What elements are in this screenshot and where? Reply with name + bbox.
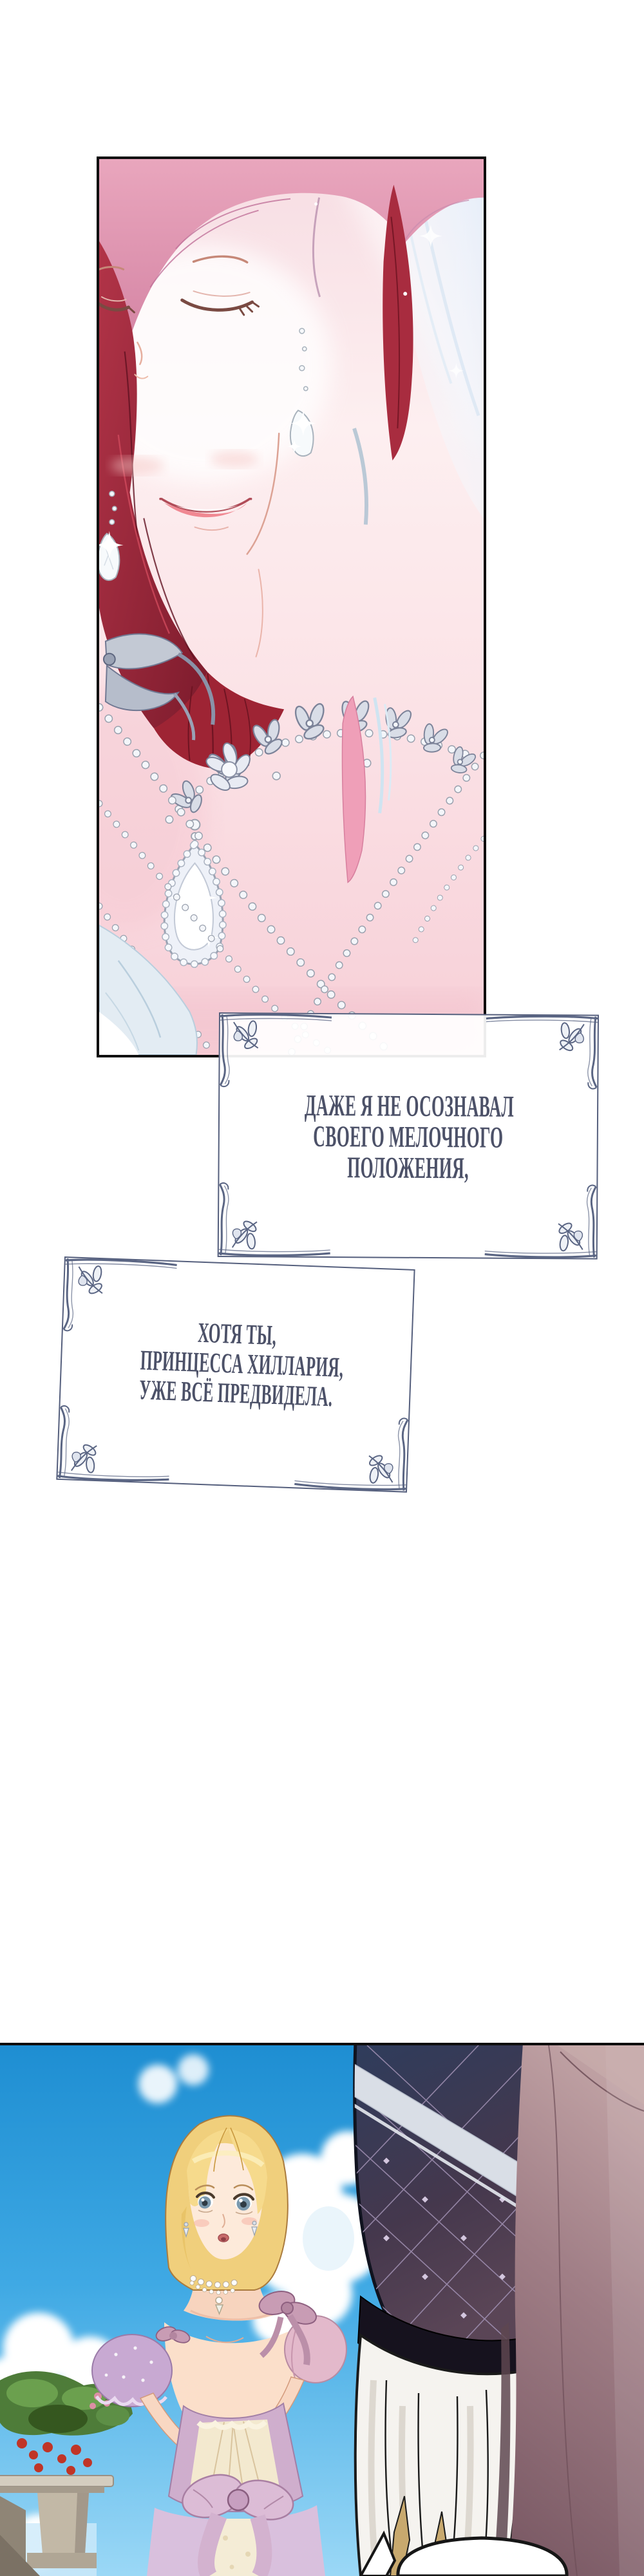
corner-ornament-icon <box>483 1014 600 1092</box>
narration-line: УЖЕ ВСЁ ПРЕДВИДЕЛА. <box>138 1375 331 1412</box>
corner-ornament-icon <box>218 1012 334 1090</box>
narration-line: ДАЖЕ Я НЕ ОСОЗНАВАЛ <box>305 1090 513 1122</box>
narration-line: ПОЛОЖЕНИЯ, <box>304 1152 512 1184</box>
left-puff-sleeve <box>92 2334 172 2407</box>
narration-text-2: ХОТЯ ТЫ, ПРИНЦЕССА ХИЛЛАРИЯ, УЖЕ ВСЁ ПРЕ… <box>138 1316 333 1412</box>
girl-head <box>166 2116 288 2290</box>
narration-line: СВОЕГО МЕЛОЧНОГО <box>305 1121 513 1153</box>
panel-garden <box>0 2043 644 2576</box>
portrait-illustration <box>99 159 484 1055</box>
corner-ornament-icon <box>482 1182 599 1260</box>
corner-ornament-icon <box>292 1412 410 1493</box>
narration-box-2: ХОТЯ ТЫ, ПРИНЦЕССА ХИЛЛАРИЯ, УЖЕ ВСЁ ПРЕ… <box>56 1256 415 1493</box>
corner-ornament-icon <box>55 1403 174 1485</box>
webtoon-page: ДАЖЕ Я НЕ ОСОЗНАВАЛ СВОЕГО МЕЛОЧНОГО ПОЛ… <box>0 0 644 2576</box>
narration-text-1: ДАЖЕ Я НЕ ОСОЗНАВАЛ СВОЕГО МЕЛОЧНОГО ПОЛ… <box>304 1090 512 1184</box>
garden-illustration <box>0 2045 644 2576</box>
panel-portrait <box>97 156 486 1057</box>
narration-box-1: ДАЖЕ Я НЕ ОСОЗНАВАЛ СВОЕГО МЕЛОЧНОГО ПОЛ… <box>218 1012 599 1260</box>
corner-ornament-icon <box>217 1180 334 1258</box>
